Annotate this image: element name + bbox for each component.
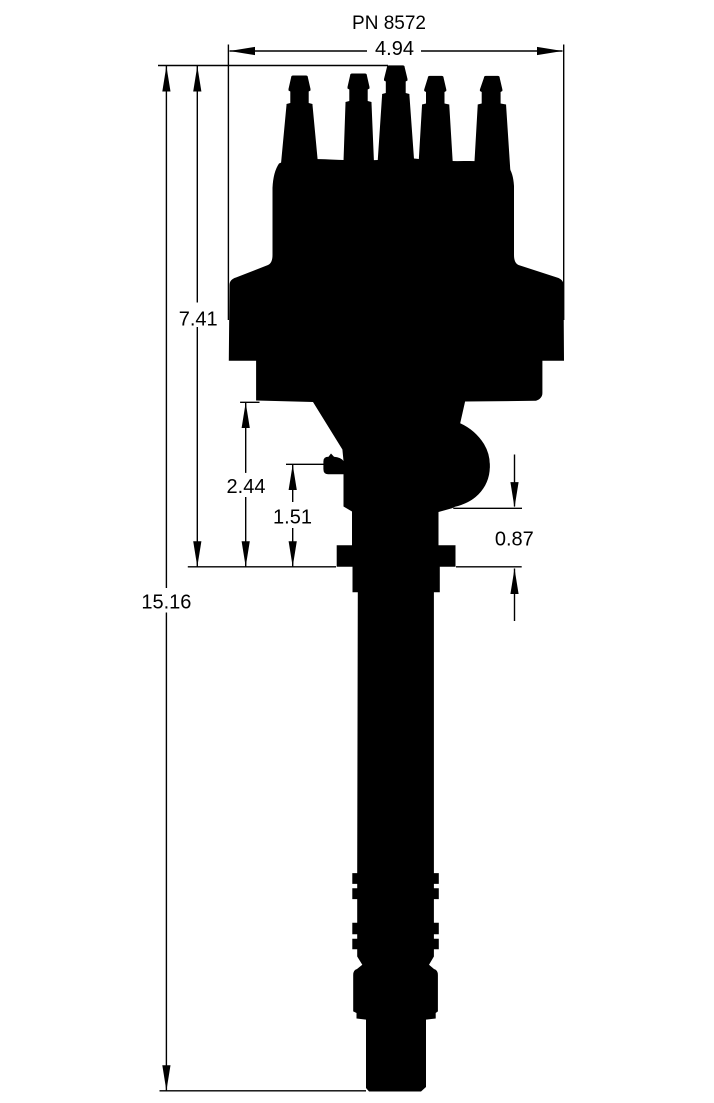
svg-text:4.94: 4.94 — [375, 38, 414, 60]
svg-text:2.44: 2.44 — [227, 476, 266, 498]
svg-text:7.41: 7.41 — [179, 309, 218, 331]
svg-text:PN 8572: PN 8572 — [352, 13, 426, 34]
svg-text:15.16: 15.16 — [141, 592, 191, 614]
svg-text:0.87: 0.87 — [495, 529, 534, 551]
svg-text:1.51: 1.51 — [273, 507, 312, 529]
